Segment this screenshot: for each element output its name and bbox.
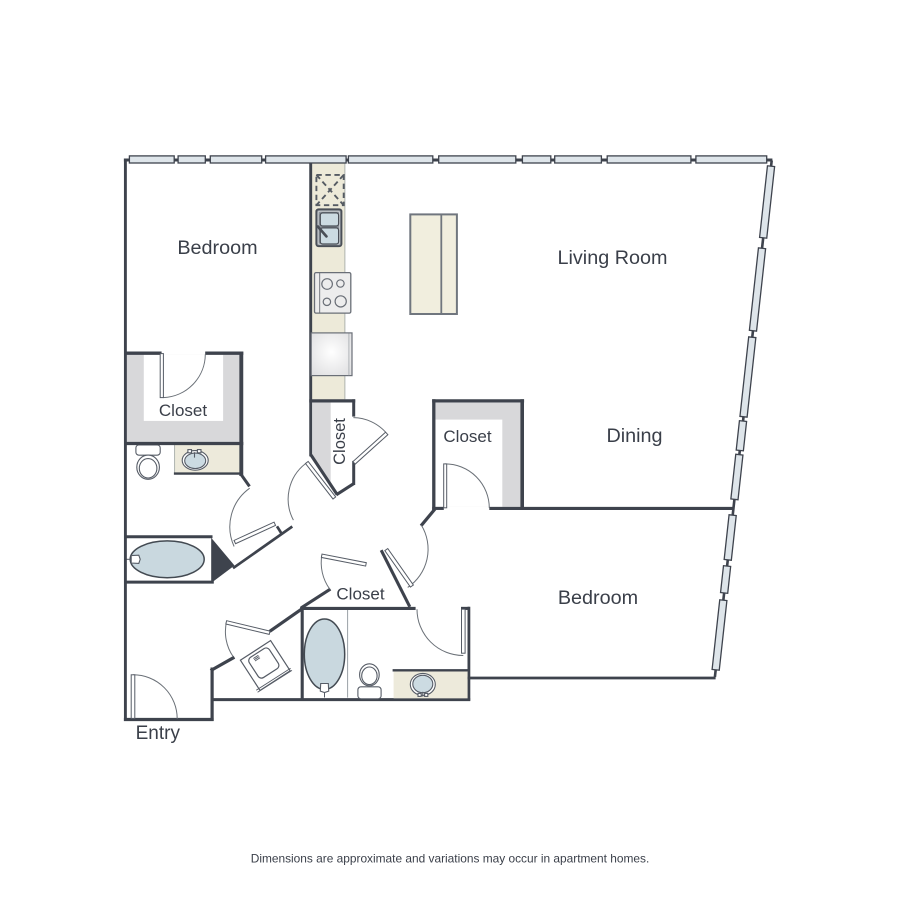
svg-text:Entry: Entry [136,723,181,744]
svg-text:Closet: Closet [159,401,207,420]
svg-text:Closet: Closet [443,427,491,446]
svg-text:Bedroom: Bedroom [558,587,638,609]
svg-text:Closet: Closet [331,418,349,465]
svg-text:Living Room: Living Room [558,247,668,269]
svg-text:Dining: Dining [606,425,662,447]
svg-text:Bedroom: Bedroom [177,237,257,259]
svg-text:Dimensions are approximate and: Dimensions are approximate and variation… [251,852,650,866]
svg-text:Closet: Closet [336,585,384,604]
